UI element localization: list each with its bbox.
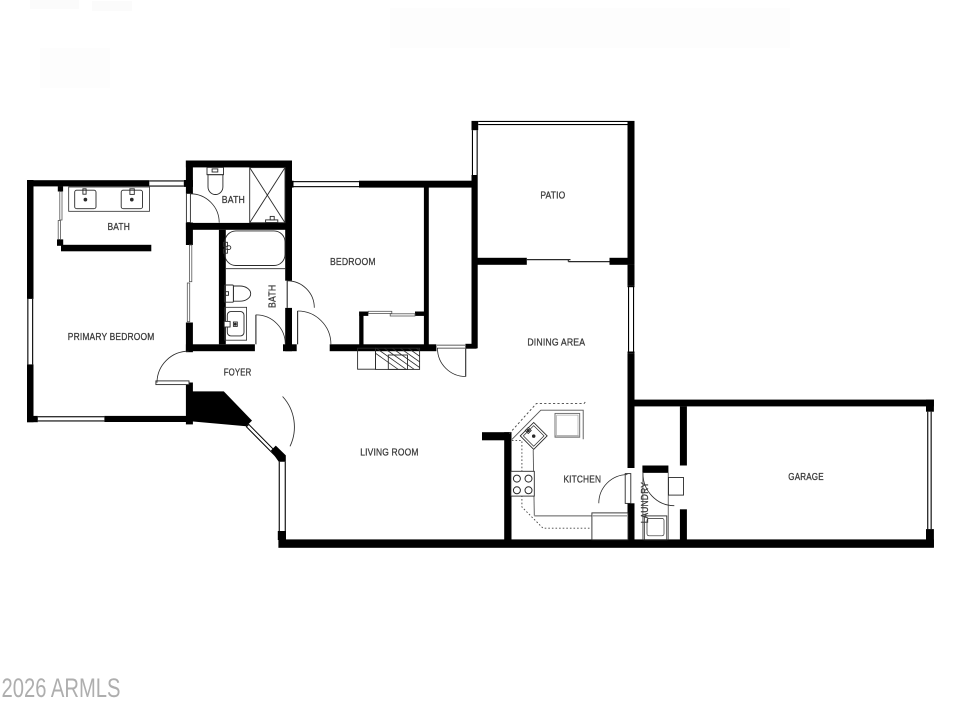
svg-text:GARAGE: GARAGE (788, 472, 824, 483)
svg-text:KITCHEN: KITCHEN (563, 475, 601, 486)
svg-text:DINING AREA: DINING AREA (527, 338, 585, 349)
svg-text:PATIO: PATIO (540, 191, 565, 202)
svg-text:BATH: BATH (268, 285, 279, 308)
svg-text:LIVING ROOM: LIVING ROOM (360, 447, 418, 458)
svg-text:BATH: BATH (222, 195, 245, 206)
svg-text:FOYER: FOYER (224, 368, 252, 379)
svg-text:2026 ARMLS: 2026 ARMLS (2, 673, 121, 703)
svg-text:BEDROOM: BEDROOM (330, 257, 376, 268)
svg-text:LAUNDRY: LAUNDRY (640, 482, 651, 523)
svg-text:BATH: BATH (107, 222, 130, 233)
svg-text:PRIMARY BEDROOM: PRIMARY BEDROOM (68, 332, 155, 343)
